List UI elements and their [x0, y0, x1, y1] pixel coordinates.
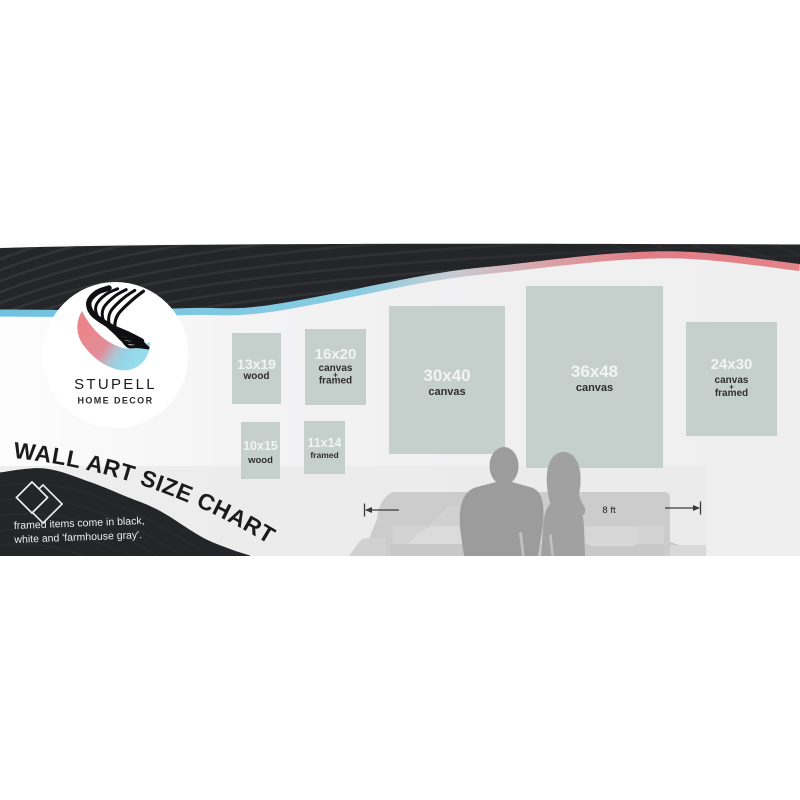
svg-text:framed: framed: [715, 388, 748, 399]
svg-text:16x20: 16x20: [315, 346, 357, 363]
svg-text:36x48: 36x48: [571, 362, 618, 381]
svg-text:10x15: 10x15: [243, 439, 278, 453]
svg-text:11x14: 11x14: [307, 436, 341, 450]
svg-text:canvas: canvas: [576, 382, 613, 394]
svg-text:24x30: 24x30: [711, 356, 753, 373]
svg-text:8 ft: 8 ft: [602, 505, 616, 516]
svg-text:framed: framed: [310, 450, 338, 460]
svg-text:HOME DECOR: HOME DECOR: [77, 396, 153, 406]
svg-text:STUPELL: STUPELL: [74, 376, 157, 393]
svg-text:30x40: 30x40: [423, 366, 470, 385]
svg-text:canvas: canvas: [428, 386, 465, 398]
svg-text:13x19: 13x19: [237, 356, 276, 372]
svg-text:framed: framed: [319, 376, 352, 387]
svg-text:wood: wood: [247, 455, 273, 466]
svg-text:wood: wood: [242, 371, 269, 382]
